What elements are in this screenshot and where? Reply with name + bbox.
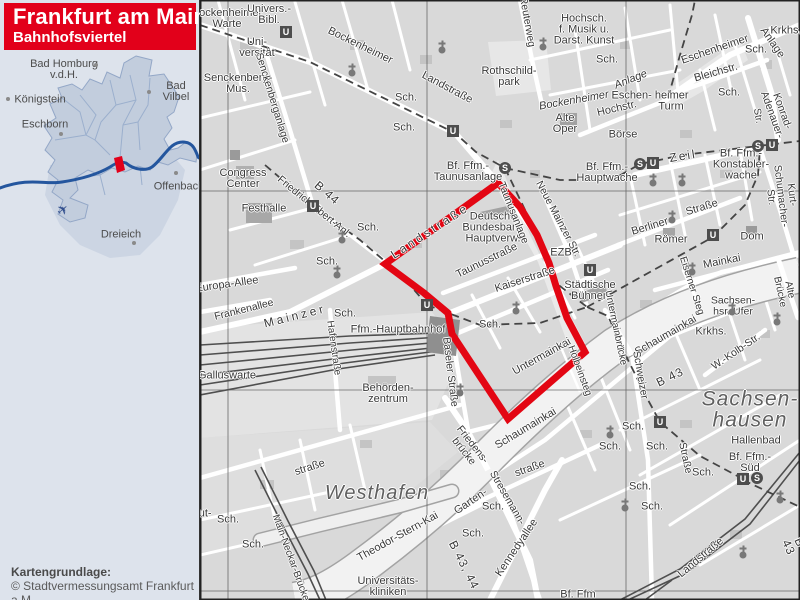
town-label: Bad Vilbel — [163, 81, 190, 103]
page-title: Frankfurt am Main — [13, 5, 196, 29]
town-dot — [6, 97, 10, 101]
attribution-heading: Kartengrundlage: — [11, 565, 199, 579]
street-map-canvas — [200, 0, 800, 600]
main-map: Bockenheimer WarteUnivers.- Bibl.Uni- ve… — [200, 0, 800, 600]
page-subtitle: Bahnhofsviertel — [13, 29, 196, 46]
town-label: Bad Homburg v.d.H. — [30, 59, 98, 81]
town-dot — [132, 241, 136, 245]
title-banner: Frankfurt am Main Bahnhofsviertel — [4, 3, 196, 50]
town-dot — [147, 90, 151, 94]
sidebar: Frankfurt am Main Bahnhofsviertel Bad Ho… — [0, 0, 200, 600]
frankfurt-map-page: Frankfurt am Main Bahnhofsviertel Bad Ho… — [0, 0, 800, 600]
town-label: Eschborn — [22, 120, 68, 131]
attribution: Kartengrundlage: © Stadtvermessungsamt F… — [11, 565, 199, 600]
town-dot — [174, 171, 178, 175]
town-dot — [94, 63, 98, 67]
town-label: Offenbach — [154, 182, 205, 193]
attribution-source: © Stadtvermessungsamt Frankfurt a.M. — [11, 579, 199, 600]
town-label: Dreieich — [101, 230, 141, 241]
town-dot — [59, 132, 63, 136]
town-label: Königstein — [14, 95, 65, 106]
